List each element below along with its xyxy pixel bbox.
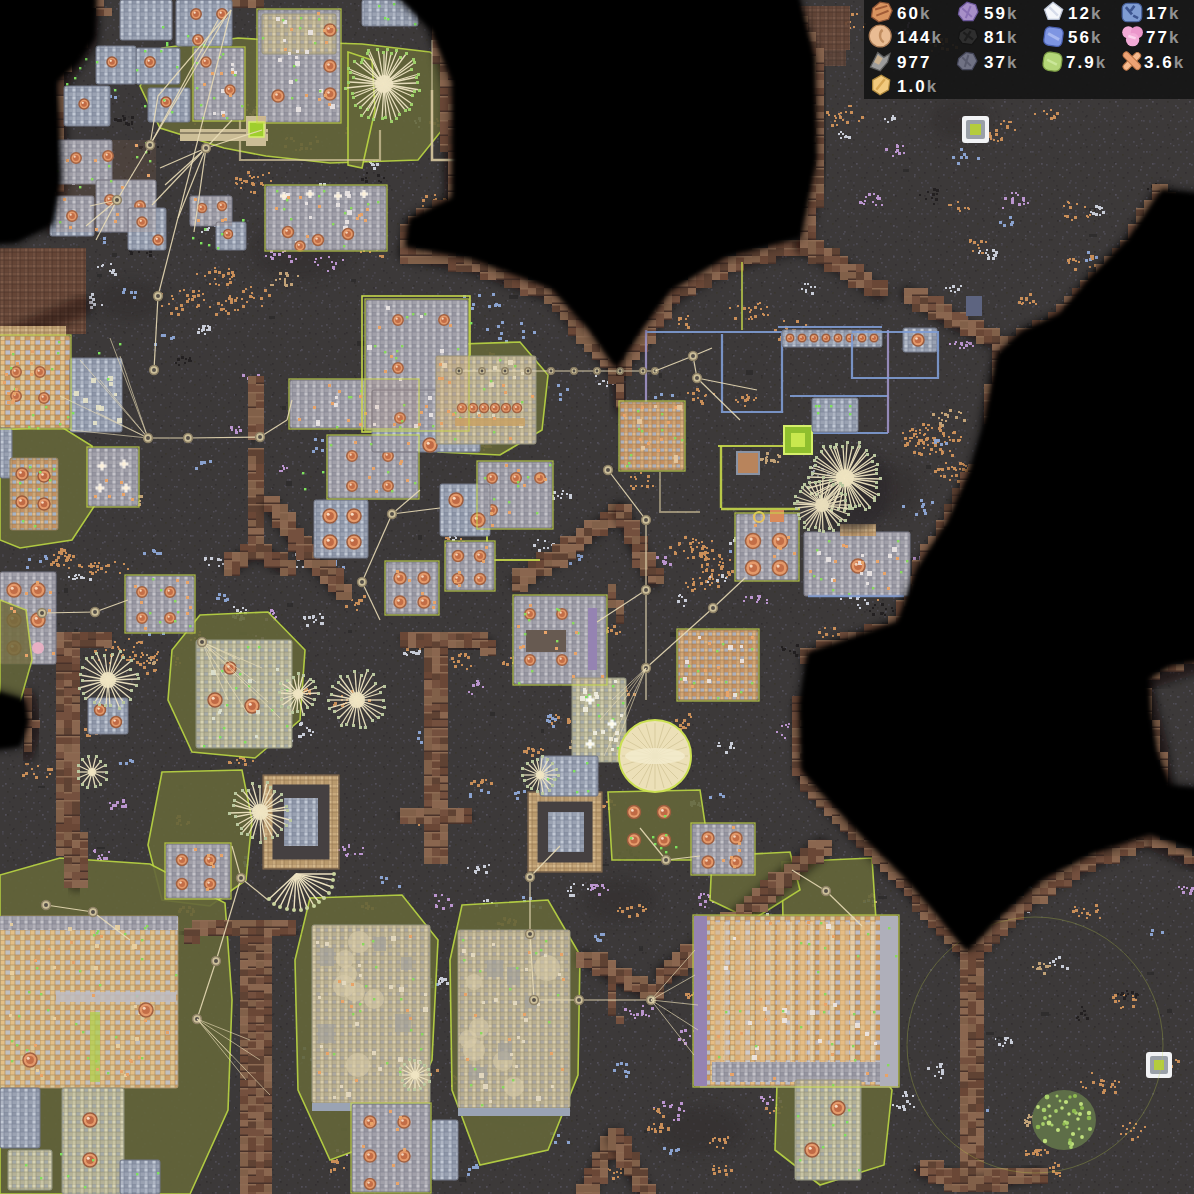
svg-text:3.6k: 3.6k [1144,53,1185,72]
svg-text:37k: 37k [984,53,1018,72]
svg-text:144k: 144k [897,28,943,47]
svg-text:17k: 17k [1146,4,1180,23]
svg-text:56k: 56k [1068,28,1102,47]
svg-text:60k: 60k [897,4,931,23]
svg-text:81k: 81k [984,28,1018,47]
svg-text:1.0k: 1.0k [897,77,938,96]
svg-text:77k: 77k [1146,28,1180,47]
svg-text:59k: 59k [984,4,1018,23]
svg-text:7.9k: 7.9k [1066,53,1107,72]
svg-text:12k: 12k [1068,4,1102,23]
svg-text:977: 977 [897,53,931,72]
